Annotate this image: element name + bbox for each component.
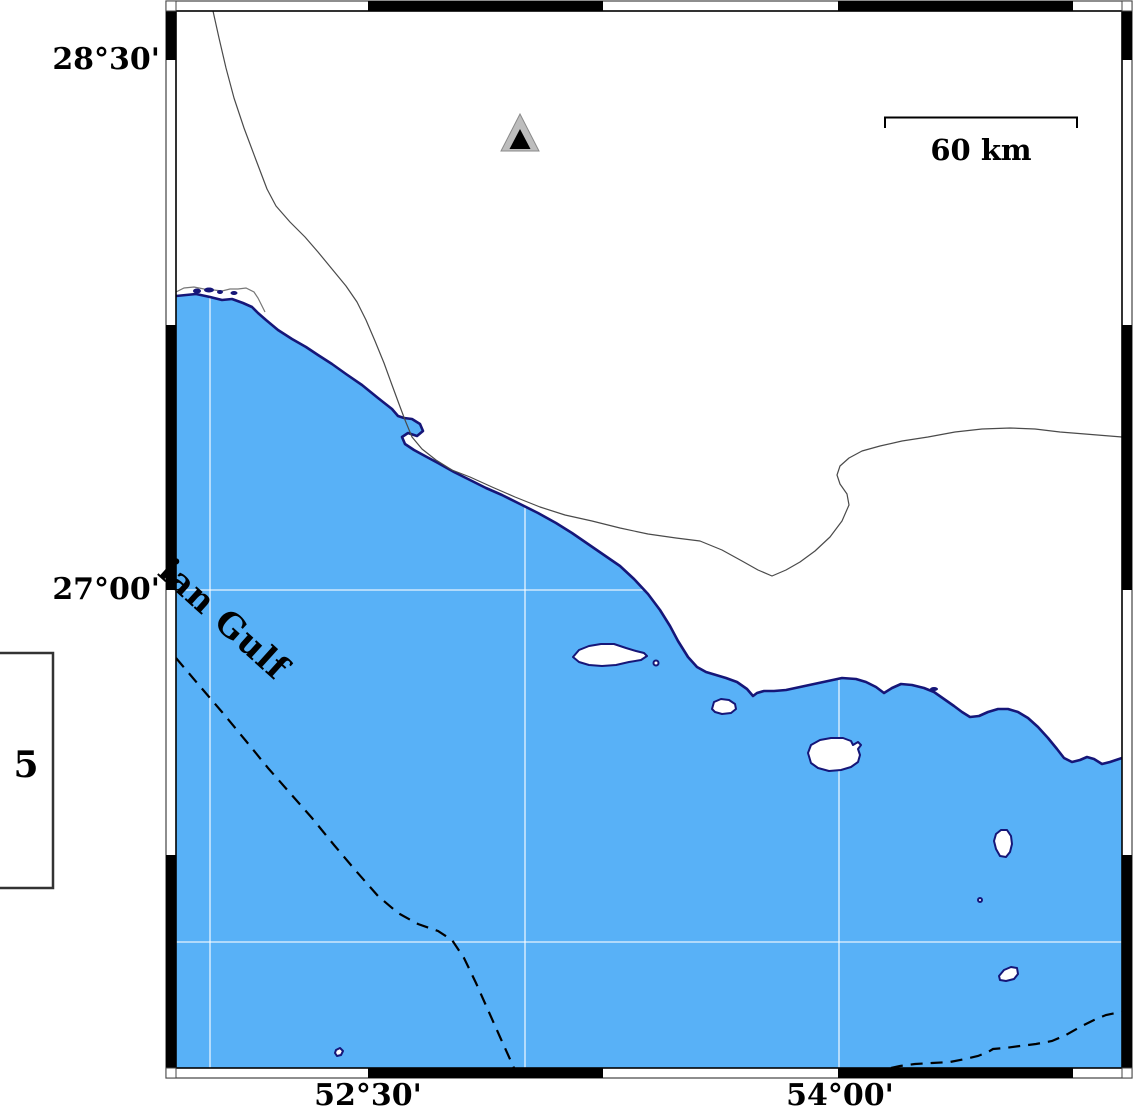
lat-label-27-00: 27°00' [10, 572, 160, 608]
frame-corner [166, 1068, 176, 1078]
frame-segment [1122, 11, 1132, 60]
frame-segment [166, 11, 176, 60]
frame-segment [368, 1068, 603, 1078]
frame-corner [1122, 1, 1132, 11]
frame-corner [1122, 1068, 1132, 1078]
frame-segment [368, 1, 603, 11]
frame-segment [1122, 325, 1132, 590]
frame-segment [166, 855, 176, 1068]
lon-label-54-00: 54°00' [755, 1078, 925, 1114]
scale-bar-label: 60 km [881, 133, 1081, 167]
tidal-flat-mark [193, 289, 201, 294]
islet [978, 898, 982, 902]
tidal-flat-mark [204, 288, 214, 293]
islet-southwest [335, 1048, 343, 1056]
tidal-flat-mark [231, 291, 238, 295]
island-small [712, 699, 736, 714]
map-page: 28°30' 27°00' 52°30' 54°00' 60 km ian Gu… [0, 0, 1134, 1116]
legend-value: 5 [0, 744, 52, 786]
coastal-mark [930, 687, 938, 691]
islet [654, 661, 659, 666]
frame-corner [166, 1, 176, 11]
frame-segment [838, 1, 1073, 11]
lon-label-52-30: 52°30' [283, 1078, 453, 1114]
frame-segment [1122, 855, 1132, 1068]
tidal-flat-mark [217, 290, 223, 294]
island-round [808, 738, 861, 771]
frame-segment [166, 325, 176, 590]
frame-segment [838, 1068, 1073, 1078]
lat-label-28-30: 28°30' [10, 42, 160, 78]
